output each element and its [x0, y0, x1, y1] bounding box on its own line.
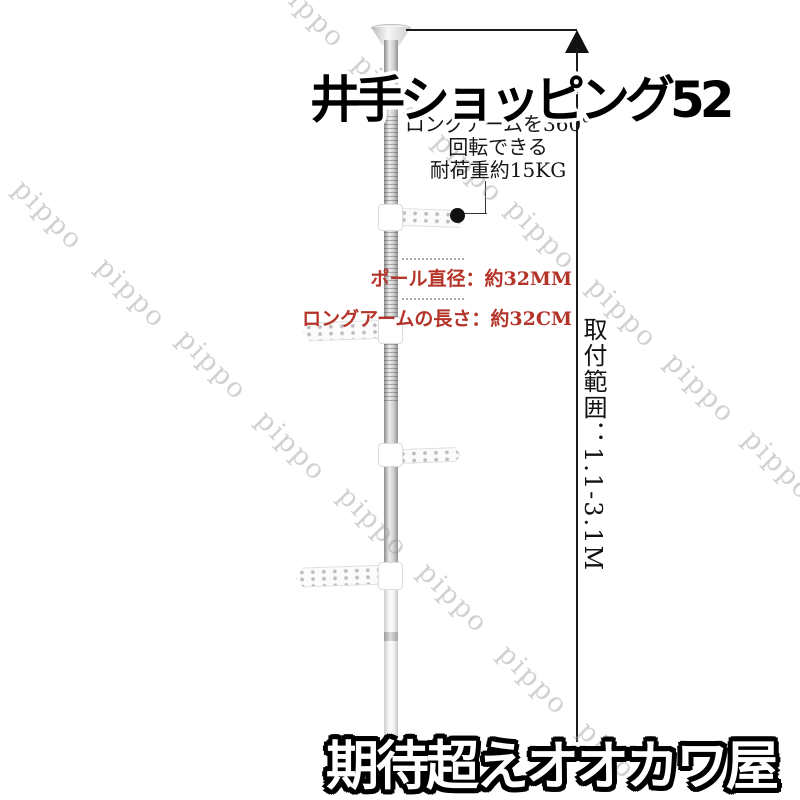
hanger-arm-lower-right: [397, 447, 460, 464]
tension-pole: [384, 40, 398, 742]
arm-bracket-1: [378, 204, 403, 231]
callout-dot: [450, 208, 465, 223]
arm-bracket-4: [378, 562, 403, 590]
pole-joint: [384, 632, 398, 641]
seller-banner: 期待超えオオカワ屋: [326, 724, 776, 800]
watermark-text: pippo: [491, 638, 574, 721]
pole-diameter-label: ポール直径：約32MM: [370, 264, 572, 291]
watermark-text: pippo: [658, 346, 741, 429]
watermark-text: pippo: [89, 251, 172, 334]
watermark-text: pippo: [331, 480, 414, 563]
watermark-text: pippo: [249, 404, 332, 487]
arm-feature-line-2: 回転できる: [398, 136, 598, 159]
watermark-text: pippo: [6, 173, 89, 256]
pole-lower-section: [384, 590, 398, 742]
dotted-line-arm-length: [402, 298, 464, 300]
dotted-line-pole-diameter: [402, 258, 464, 260]
watermark-text: pippo: [411, 556, 494, 639]
arm-length-label: ロングアームの長さ：約32CM: [302, 304, 572, 331]
watermark-text: pippo: [736, 423, 800, 506]
arm-feature-line-3: 耐荷重約15KG: [398, 159, 598, 182]
callout-line-vertical: [485, 181, 486, 214]
watermark-text: pippo: [268, 0, 351, 55]
shop-title: 井手ショッピング52: [310, 60, 730, 132]
measure-top-line: [406, 29, 577, 31]
arm-bracket-3: [378, 443, 403, 467]
watermark-text: pippo: [170, 323, 253, 406]
pole-threaded-section: [384, 116, 398, 402]
install-range-label: 取付範囲：1.1-3.1M: [576, 317, 611, 572]
product-image: pippopippopippopippopippopippopippopippo…: [0, 0, 800, 800]
